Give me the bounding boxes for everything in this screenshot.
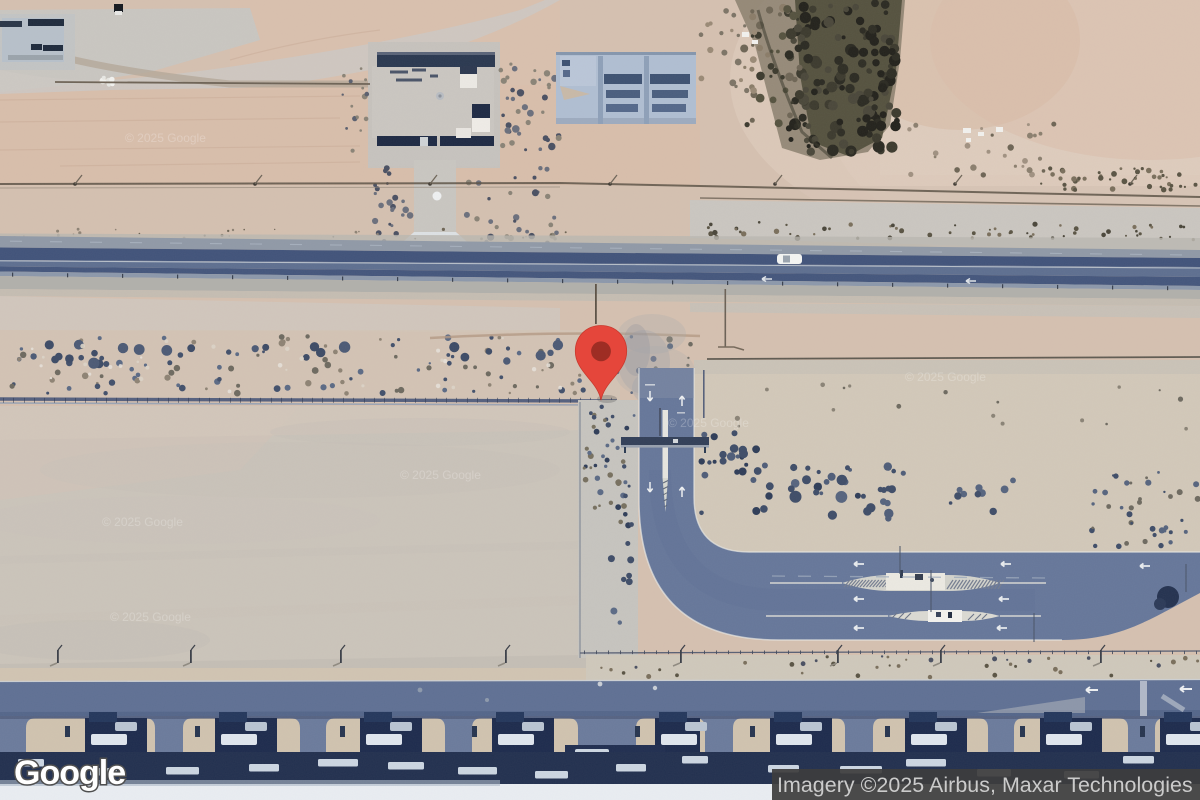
svg-text:Google: Google bbox=[14, 754, 125, 792]
svg-text:Imagery ©2025 Airbus, Maxar Te: Imagery ©2025 Airbus, Maxar Technologies bbox=[777, 773, 1193, 797]
